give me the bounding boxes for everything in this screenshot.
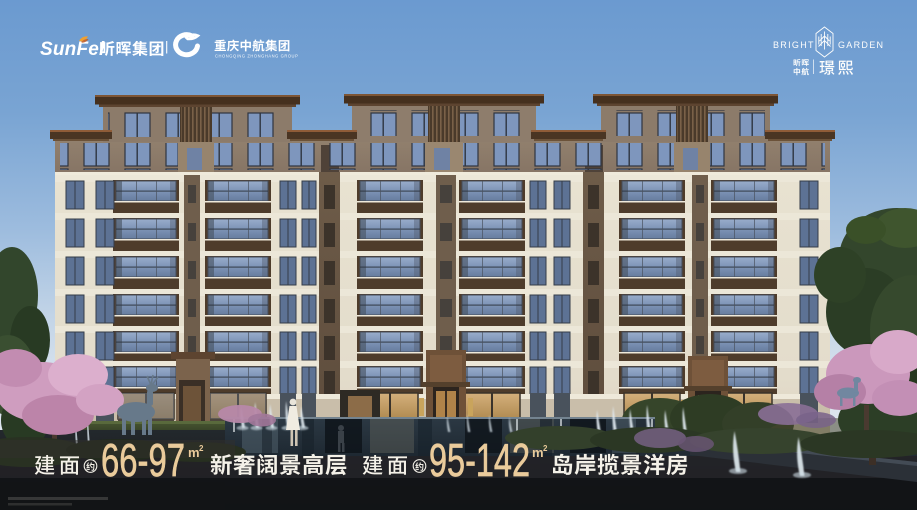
svg-text:95-142: 95-142: [429, 434, 530, 486]
svg-text:SunFel: SunFel: [40, 39, 105, 60]
svg-text:66-97: 66-97: [101, 434, 185, 486]
svg-text:GARDEN: GARDEN: [838, 40, 884, 50]
svg-text:2: 2: [543, 444, 548, 453]
svg-text:CHONGQING ZHONGHANG GROUP: CHONGQING ZHONGHANG GROUP: [215, 54, 298, 59]
svg-text:2: 2: [199, 444, 204, 453]
svg-text:m: m: [188, 445, 200, 460]
svg-text:m: m: [532, 445, 544, 460]
svg-text:BRIGHT: BRIGHT: [773, 40, 815, 50]
